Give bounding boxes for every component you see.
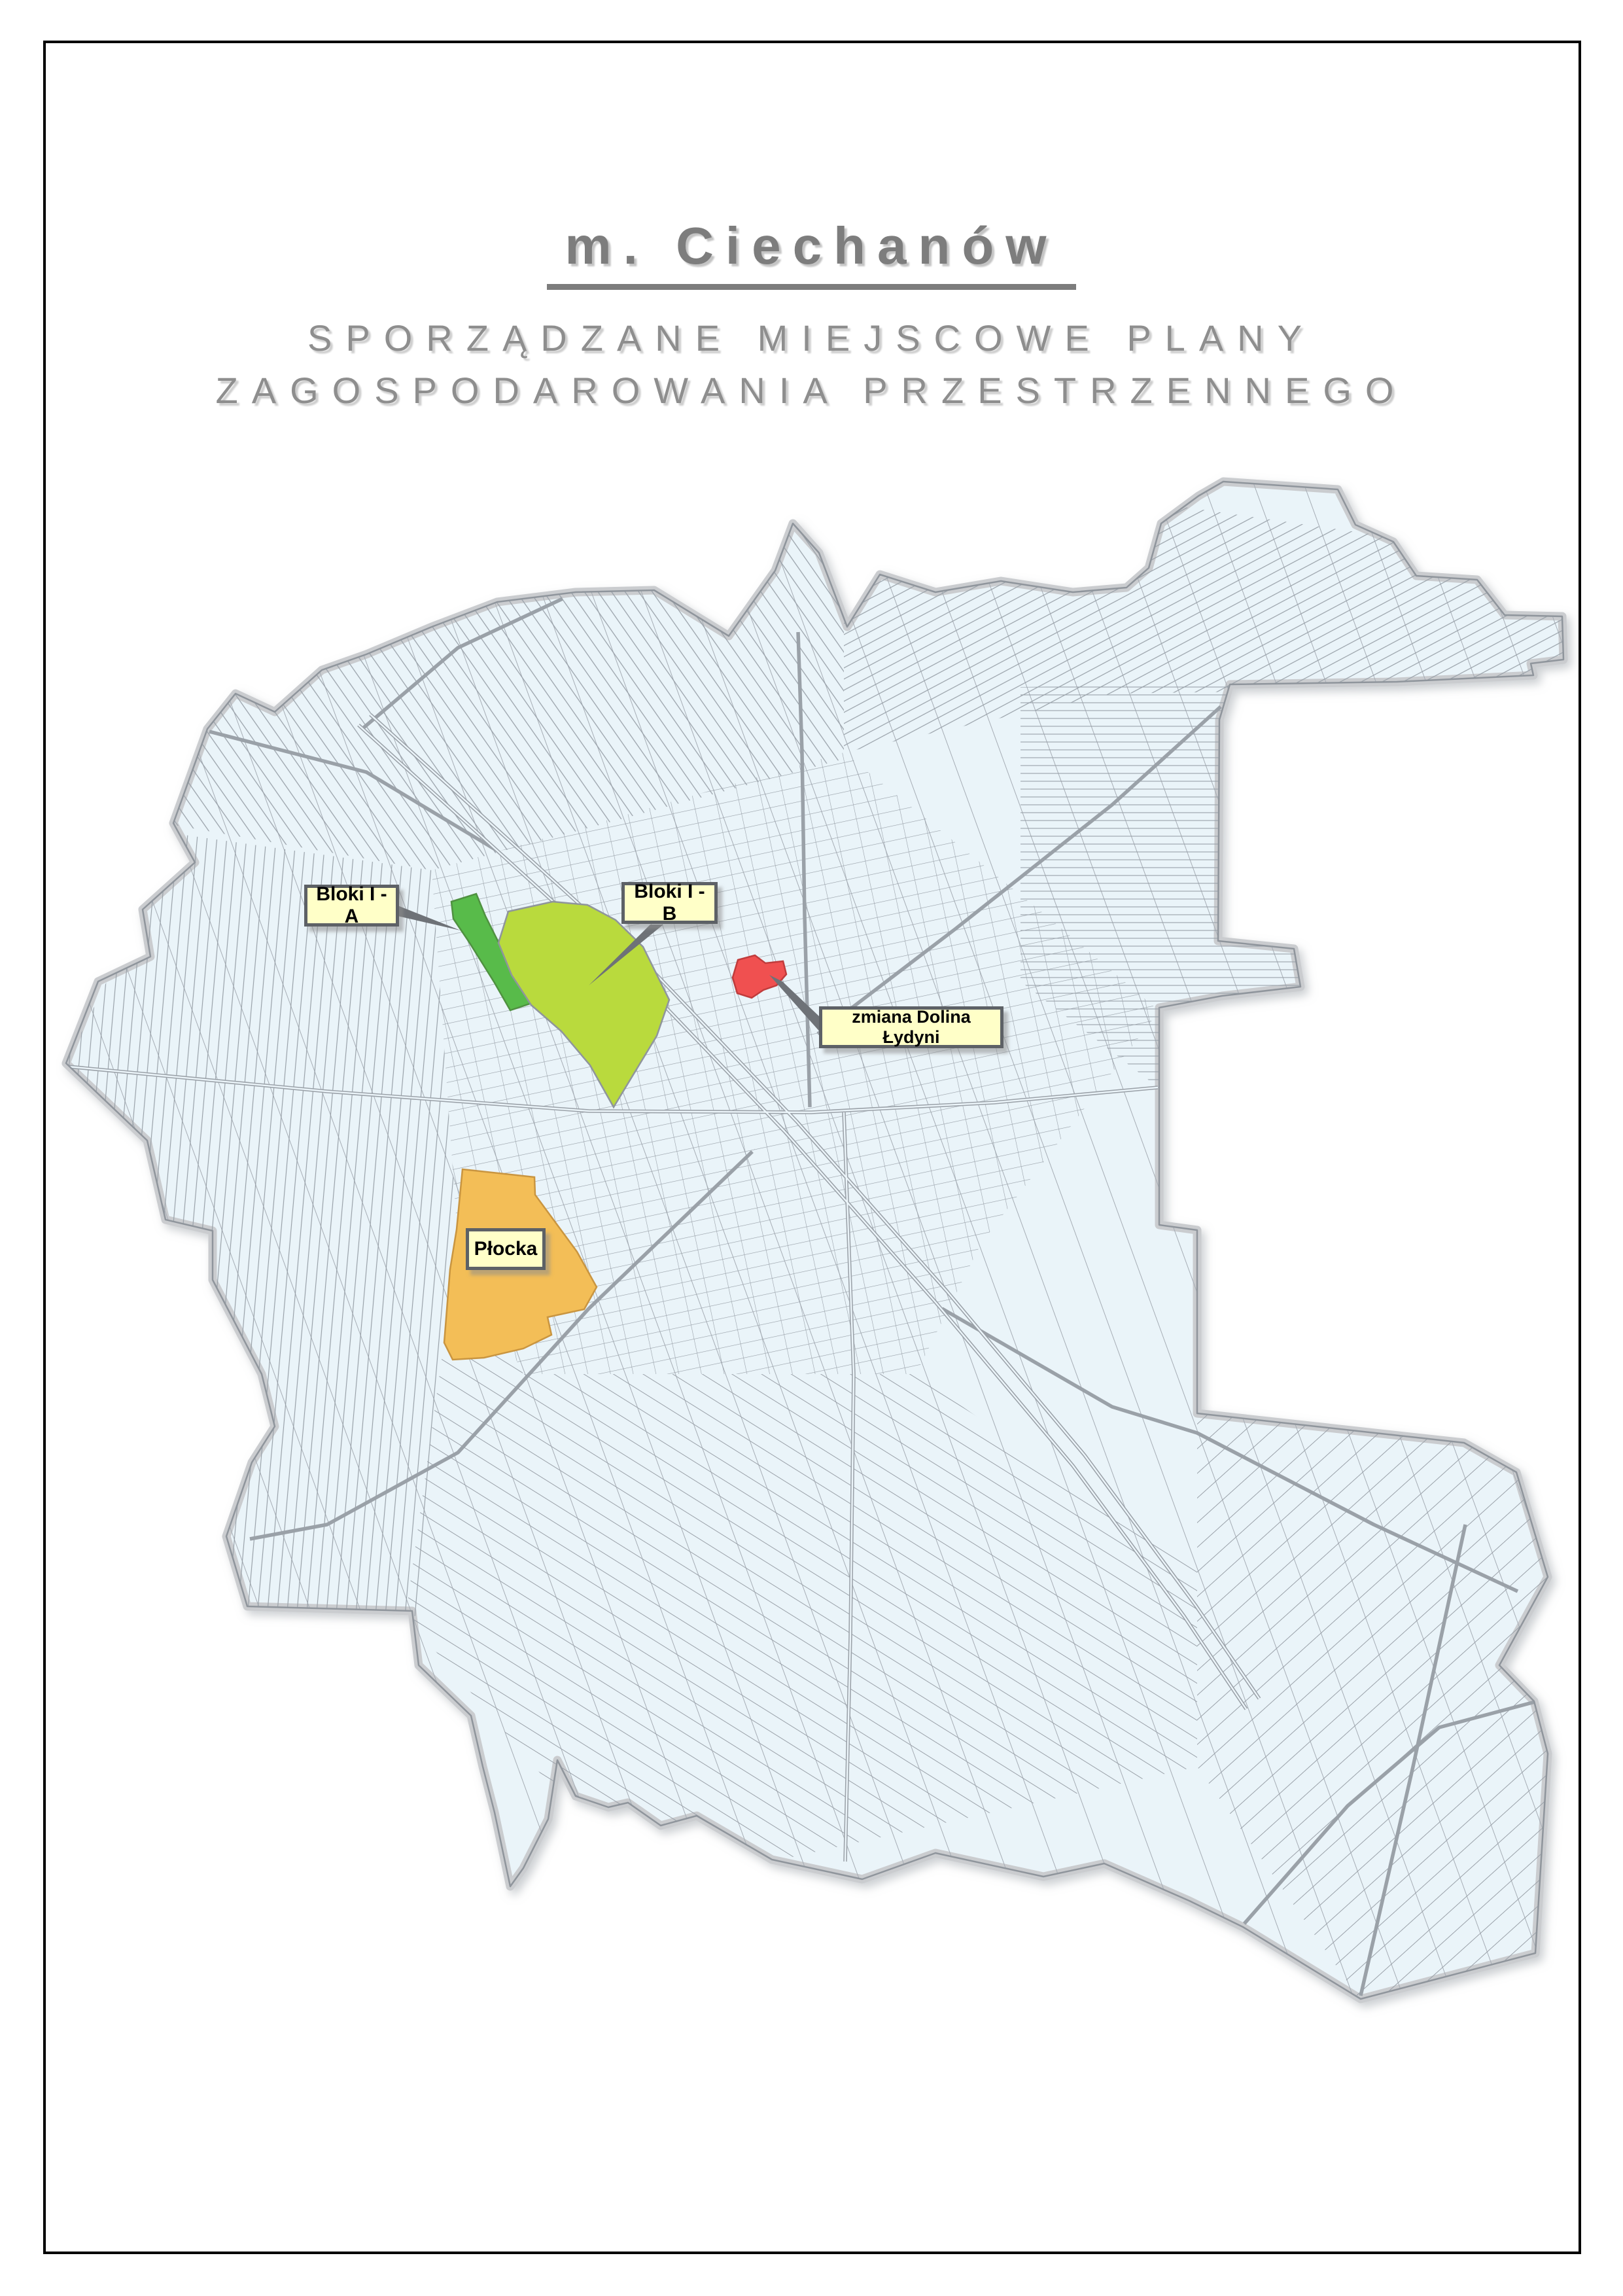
label-bloki-1b: Bloki I - B	[621, 882, 718, 924]
label-dolina-lydyni: zmiana Dolina Łydyni	[819, 1006, 1003, 1048]
page-title: m. Ciechanów	[547, 216, 1077, 290]
label-plocka: Płocka	[466, 1228, 546, 1270]
header: m. Ciechanów SPORZĄDZANE MIEJSCOWE PLANY…	[0, 216, 1623, 417]
page: m. Ciechanów SPORZĄDZANE MIEJSCOWE PLANY…	[0, 0, 1623, 2296]
parcel-texture	[59, 458, 1570, 2015]
page-subtitle-line1: SPORZĄDZANE MIEJSCOWE PLANY	[0, 312, 1623, 364]
page-subtitle-line2: ZAGOSPODAROWANIA PRZESTRZENNEGO	[0, 364, 1623, 417]
label-bloki-1a: Bloki I - A	[304, 885, 399, 927]
